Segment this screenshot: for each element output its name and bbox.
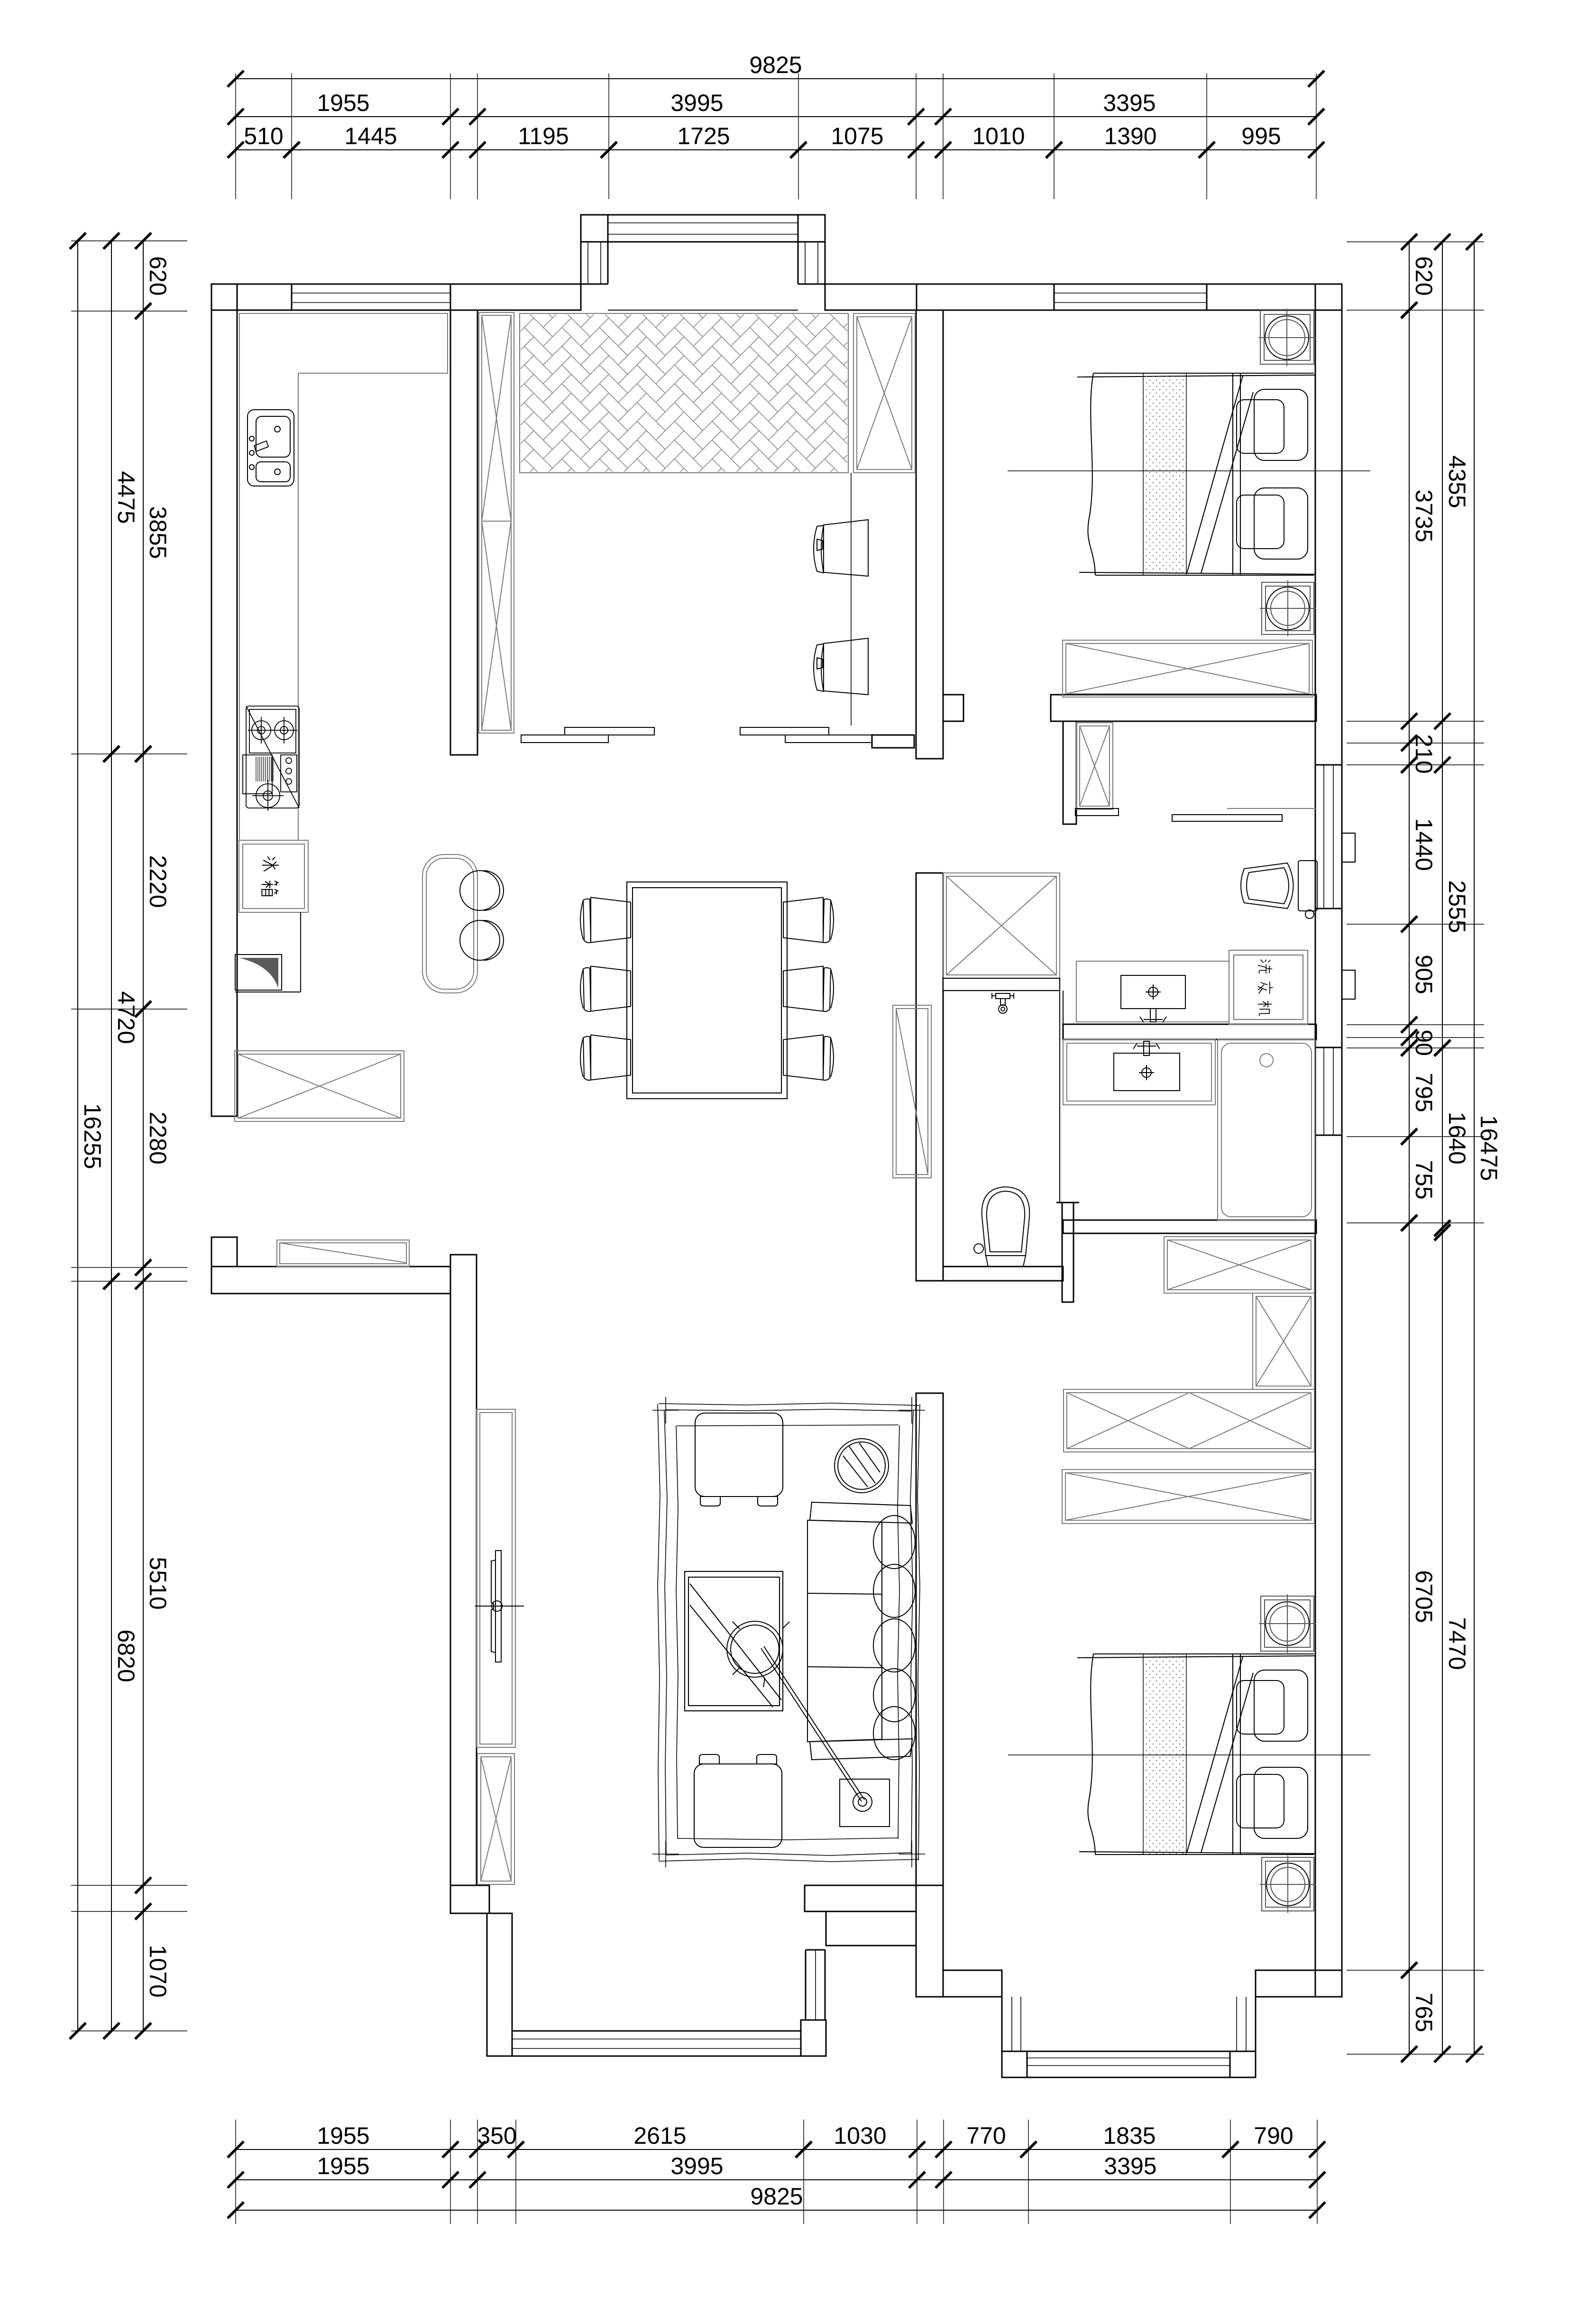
svg-text:755: 755 [1411,1160,1437,1199]
svg-text:3995: 3995 [670,90,723,116]
svg-text:2555: 2555 [1444,880,1470,933]
svg-text:4355: 4355 [1444,455,1470,508]
svg-text:6820: 6820 [113,1629,139,1682]
svg-text:1390: 1390 [1104,123,1156,149]
svg-text:795: 795 [1411,1073,1437,1112]
svg-text:4720: 4720 [113,991,139,1044]
svg-text:7470: 7470 [1444,1617,1470,1670]
svg-text:770: 770 [966,2122,1006,2149]
svg-text:210: 210 [1411,734,1437,773]
svg-text:1195: 1195 [518,123,569,149]
svg-text:620: 620 [1411,256,1437,295]
svg-text:9825: 9825 [750,2183,803,2210]
svg-text:1955: 1955 [317,90,369,116]
svg-text:350: 350 [477,2122,516,2149]
svg-text:1440: 1440 [1411,818,1437,871]
svg-text:1070: 1070 [145,1945,171,1997]
svg-text:1955: 1955 [317,2122,369,2149]
svg-text:1955: 1955 [317,2153,369,2179]
svg-text:6705: 6705 [1411,1570,1437,1623]
svg-text:765: 765 [1411,1993,1437,2032]
svg-text:1010: 1010 [972,123,1025,149]
svg-text:995: 995 [1241,123,1281,149]
svg-text:620: 620 [145,256,171,295]
svg-text:1640: 1640 [1444,1111,1470,1164]
svg-text:2220: 2220 [145,855,171,908]
svg-text:1030: 1030 [834,2122,886,2149]
svg-text:790: 790 [1254,2122,1293,2149]
svg-text:3395: 3395 [1103,90,1156,116]
svg-text:1075: 1075 [831,123,883,149]
svg-text:9825: 9825 [749,52,802,78]
svg-text:2280: 2280 [145,1111,171,1164]
svg-text:3395: 3395 [1104,2153,1156,2179]
svg-text:16255: 16255 [79,1103,106,1169]
svg-text:16475: 16475 [1476,1115,1502,1181]
svg-text:3735: 3735 [1411,489,1437,542]
svg-text:3855: 3855 [145,506,171,559]
svg-text:1725: 1725 [677,123,730,149]
svg-text:1445: 1445 [344,123,397,149]
svg-text:510: 510 [244,123,283,149]
svg-text:3995: 3995 [670,2153,723,2179]
svg-text:5510: 5510 [145,1557,171,1609]
svg-text:2615: 2615 [633,2122,686,2149]
svg-text:1835: 1835 [1103,2122,1156,2149]
svg-text:905: 905 [1411,955,1437,994]
svg-text:4475: 4475 [113,471,139,523]
